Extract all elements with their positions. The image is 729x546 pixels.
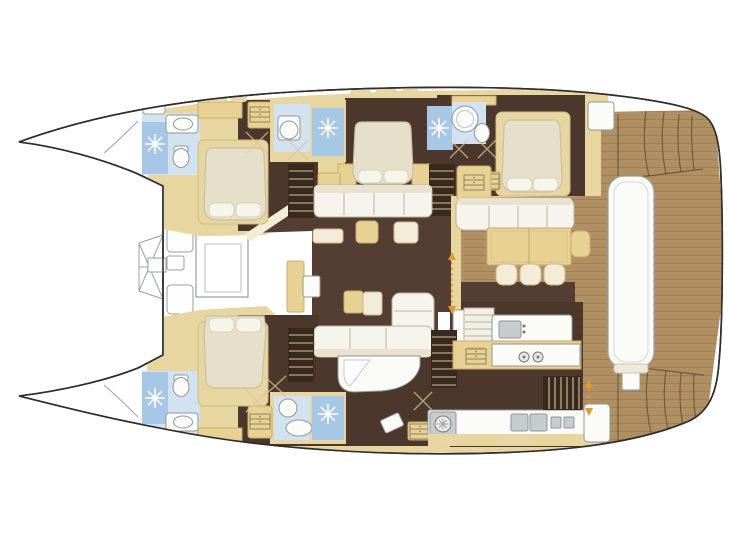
- cockpit-stool: [544, 264, 565, 285]
- sink-icon: [280, 121, 298, 139]
- deck-hatch-icon: [167, 285, 193, 314]
- pillow: [533, 178, 558, 191]
- deck-locker: [622, 372, 640, 390]
- sink-icon: [174, 118, 193, 130]
- shower-rose-icon: [145, 388, 165, 408]
- pillow: [209, 318, 234, 332]
- stair-icon: [543, 376, 581, 410]
- burner-icon: [519, 352, 529, 362]
- toilet-icon: [173, 375, 189, 397]
- toilet-icon: [475, 124, 490, 143]
- sink-icon: [499, 321, 521, 338]
- sink-icon: [174, 416, 193, 428]
- coffee-table: [344, 291, 363, 313]
- washing-machine-icon: [430, 412, 456, 436]
- cockpit-chair: [571, 231, 590, 257]
- deck-hatch-icon: [143, 432, 165, 448]
- starboard-mid-bathroom: [270, 100, 346, 162]
- toilet-icon: [173, 146, 189, 168]
- shower-rose-icon: [318, 404, 338, 424]
- pillow: [358, 170, 382, 183]
- deck-plan-canvas: [0, 0, 729, 546]
- stair-icon: [464, 308, 494, 342]
- deck-hatch-icon: [167, 256, 184, 270]
- pillow: [209, 203, 234, 217]
- salon-cabinet: [287, 261, 304, 312]
- shower-rose-icon: [429, 118, 449, 138]
- sink-icon: [530, 414, 547, 431]
- side-table: [313, 229, 343, 243]
- burner-icon: [533, 352, 543, 362]
- shower-rose-icon: [145, 134, 165, 154]
- skylight-icon: [196, 233, 248, 297]
- pillow: [507, 178, 532, 191]
- windlass-platform: [139, 235, 166, 299]
- pillow: [236, 203, 261, 217]
- ottoman: [394, 222, 418, 243]
- stair-icon: [288, 328, 314, 382]
- coffee-table: [363, 292, 382, 315]
- stair-icon: [288, 164, 314, 218]
- sink-icon: [452, 106, 478, 132]
- catamaran-floorplan: [0, 0, 729, 546]
- pillow: [384, 170, 408, 183]
- wardrobe: [588, 102, 614, 130]
- stern-platform: [608, 176, 654, 373]
- cockpit-stool: [496, 264, 517, 285]
- sink-icon: [511, 414, 528, 431]
- cockpit-stool: [520, 264, 541, 285]
- bidet-icon: [286, 420, 312, 436]
- port-forward-bathroom: [142, 371, 200, 433]
- ottoman: [356, 221, 378, 243]
- salon-unit: [303, 276, 320, 297]
- sink-icon: [279, 399, 297, 417]
- shower-rose-icon: [318, 118, 338, 138]
- stern-bench: [608, 176, 654, 368]
- pillow: [236, 318, 261, 332]
- wardrobe: [198, 102, 242, 118]
- starboard-forward-bathroom: [142, 113, 200, 175]
